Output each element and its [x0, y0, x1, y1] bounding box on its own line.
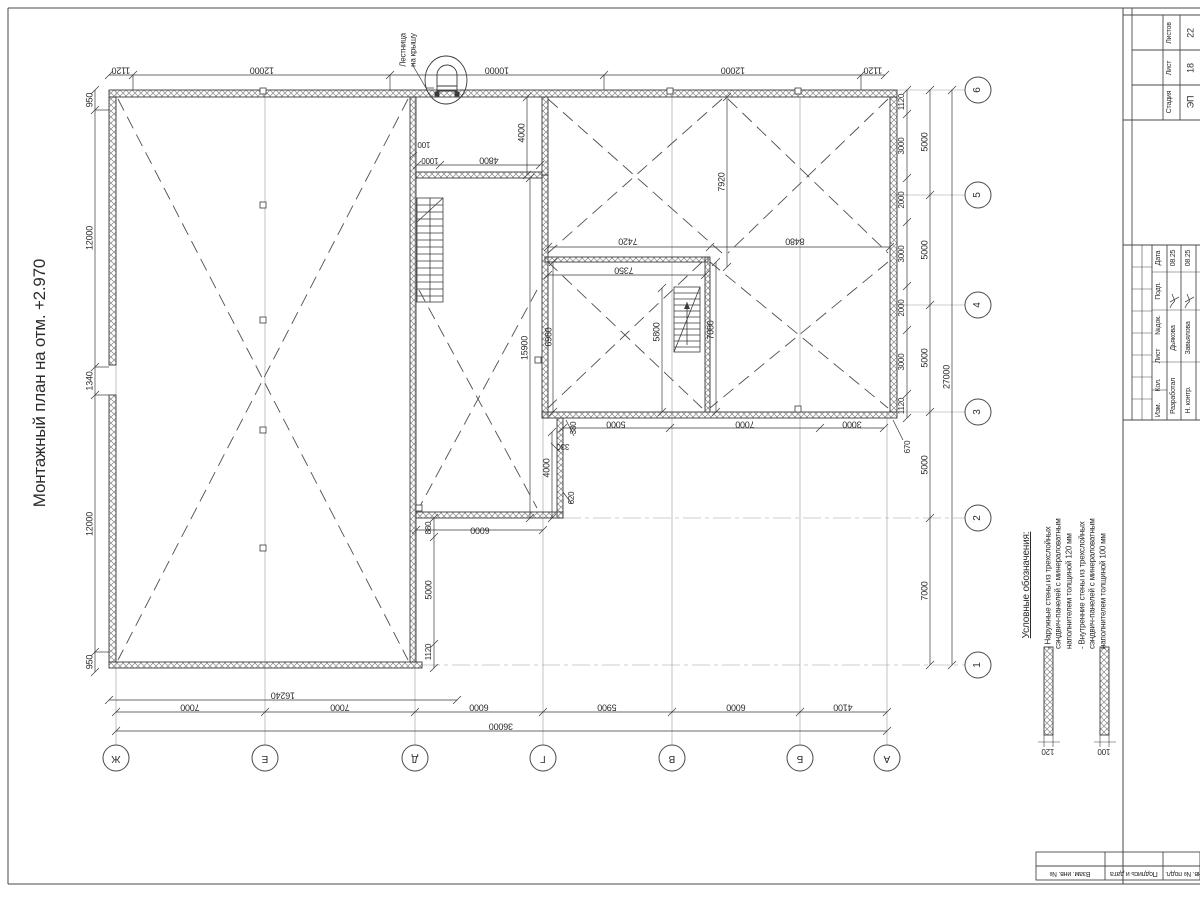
stamp-row-ncontrol-role: Н. контр. — [1185, 386, 1193, 413]
stamp-sheet-label: Лист — [1166, 61, 1174, 75]
dimension-label: 27000 — [942, 365, 953, 389]
dimension-label: 4100 — [833, 702, 852, 713]
stamp-row-developer-date: 08.25 — [1170, 250, 1178, 267]
dimension-label: 7000 — [330, 702, 349, 713]
dimension-label: 2000 — [897, 300, 907, 317]
legend-thickness-outer: 120 — [1042, 746, 1055, 756]
axis-label: 2 — [972, 515, 984, 520]
dimension-label: 3000 — [842, 419, 861, 430]
dimension-label: 7000 — [920, 581, 931, 600]
dimension-label: 7920 — [717, 172, 728, 191]
dimension-label: 6980 — [544, 327, 555, 346]
dimension-label: 5000 — [920, 132, 931, 151]
axis-label: Д — [412, 752, 419, 764]
dimension-label: 5900 — [597, 702, 616, 713]
dimension-label: 7420 — [618, 236, 637, 247]
dimension-label: 3000 — [897, 246, 907, 263]
dimension-label: 330 — [557, 441, 570, 451]
legend-wall-samples — [1038, 647, 1116, 747]
dimension-label: 16240 — [271, 690, 295, 701]
stamp-total-value: 22 — [1186, 28, 1197, 38]
dimension-label: 2000 — [897, 192, 907, 209]
frame-label-vzam: Взам. инв. № — [1050, 869, 1091, 877]
stamp-row-ncontrol-date: 08.25 — [1185, 250, 1193, 267]
dimension-label: 5000 — [920, 348, 931, 367]
axis-label: В — [669, 752, 675, 764]
axis-label: Г — [540, 752, 545, 764]
dimension-lines — [91, 71, 956, 735]
dimension-label: 8480 — [785, 236, 804, 247]
dimension-label: 100 — [418, 139, 431, 149]
drawing-title: Монтажный план на отм. +2.970 — [30, 259, 50, 507]
axis-label: 5 — [972, 192, 984, 197]
stamp-header-qty: Кол. — [1155, 378, 1163, 391]
legend-item-outer-walls: - Наружные стены из трехслойных сэндвич-… — [1043, 471, 1074, 649]
legend-thickness-inner: 100 — [1098, 746, 1111, 756]
legend-header: Условные обозначения: — [1021, 532, 1033, 639]
drawing-sheet: Монтажный план на отм. +2.970 Условные о… — [0, 0, 1200, 900]
dimension-label: 5800 — [652, 322, 663, 341]
legend-item-inner-walls: - Внутренние стены из трехслойных сэндви… — [1077, 471, 1108, 649]
sheet-frame — [8, 8, 1200, 884]
walls — [109, 90, 897, 668]
column-markers — [260, 88, 801, 551]
axis-label: 6 — [972, 87, 984, 92]
dimension-label: 36000 — [489, 721, 513, 732]
dimension-label: 950 — [85, 655, 96, 669]
stamp-header-change: Изм. — [1155, 403, 1163, 417]
stamp-header-sheet: Лист — [1155, 349, 1163, 363]
dimension-label: 6000 — [470, 525, 489, 536]
dimension-label: 7000 — [180, 702, 199, 713]
dimension-label: 12000 — [85, 226, 96, 250]
dimension-label: 4800 — [479, 155, 498, 166]
dimension-label: 670 — [903, 441, 913, 454]
stamp-total-label: Листов — [1166, 22, 1174, 44]
stamp-sheet-value: 18 — [1186, 63, 1197, 73]
dimension-label: 880 — [424, 522, 434, 535]
dimension-label: 7080 — [706, 320, 717, 339]
stair-flight — [417, 198, 443, 302]
stamp-stage-label: Стадия — [1166, 91, 1174, 114]
dimension-label: 1120 — [897, 398, 907, 414]
axis-label: А — [884, 752, 890, 764]
dimension-label: 1120 — [897, 94, 907, 110]
frame-label-inv: Инв. № подл. — [1165, 869, 1200, 877]
dimension-label: 5000 — [606, 419, 625, 430]
dimension-label: 1120 — [864, 65, 883, 76]
dimension-label: 6000 — [726, 702, 745, 713]
dimension-label: 380 — [569, 422, 579, 435]
dimension-label: 1120 — [112, 65, 131, 76]
stamp-stage-value: ЭП — [1186, 96, 1197, 109]
dimension-label: 12000 — [250, 65, 274, 76]
stamp-row-ncontrol-name: Завьялова — [1185, 321, 1193, 354]
dimension-label: 620 — [567, 492, 577, 505]
stair-ramp — [674, 287, 700, 352]
dimension-label: 12000 — [721, 65, 745, 76]
stamp-row-developer-role: Разработал — [1170, 378, 1178, 414]
dimension-label: 3000 — [897, 138, 907, 155]
dimension-label: 5000 — [920, 455, 931, 474]
dimension-label: 7000 — [735, 419, 754, 430]
dimension-label: 10000 — [485, 65, 509, 76]
dimension-label: 4000 — [517, 123, 528, 142]
dimension-label: 1120 — [424, 644, 434, 660]
bracing-lines — [118, 99, 888, 660]
dimension-label: 5000 — [920, 240, 931, 259]
dimension-label: 5000 — [424, 580, 435, 599]
dimension-label: 1000 — [422, 155, 439, 165]
stamp-header-docnum: №док. — [1155, 315, 1163, 335]
axis-label: 3 — [972, 409, 984, 414]
dimension-label: 950 — [85, 93, 96, 107]
dimension-label: 3000 — [897, 354, 907, 371]
dimension-label: 7350 — [614, 265, 633, 276]
dimension-label: 4000 — [542, 458, 553, 477]
axis-label: Е — [262, 752, 268, 764]
dimension-label: 1340 — [85, 371, 96, 390]
stamp-row-developer-name: Дьякова — [1170, 325, 1178, 350]
dimension-label: 6000 — [469, 702, 488, 713]
stamp-header-date: Дата — [1155, 251, 1163, 266]
floor-plan-linework — [0, 0, 1200, 900]
dimension-label: 12000 — [85, 512, 96, 536]
roof-ladder-label: Лестница на крышу — [398, 33, 417, 67]
dimension-label: 15900 — [520, 336, 531, 360]
frame-label-podpis: Подпись и дата — [1110, 869, 1158, 877]
axis-label: Ж — [111, 752, 120, 764]
stamp-header-sign: Подп. — [1155, 282, 1163, 300]
axis-label: Б — [797, 752, 803, 764]
axis-label: 1 — [972, 662, 984, 667]
axis-label: 4 — [972, 302, 984, 307]
